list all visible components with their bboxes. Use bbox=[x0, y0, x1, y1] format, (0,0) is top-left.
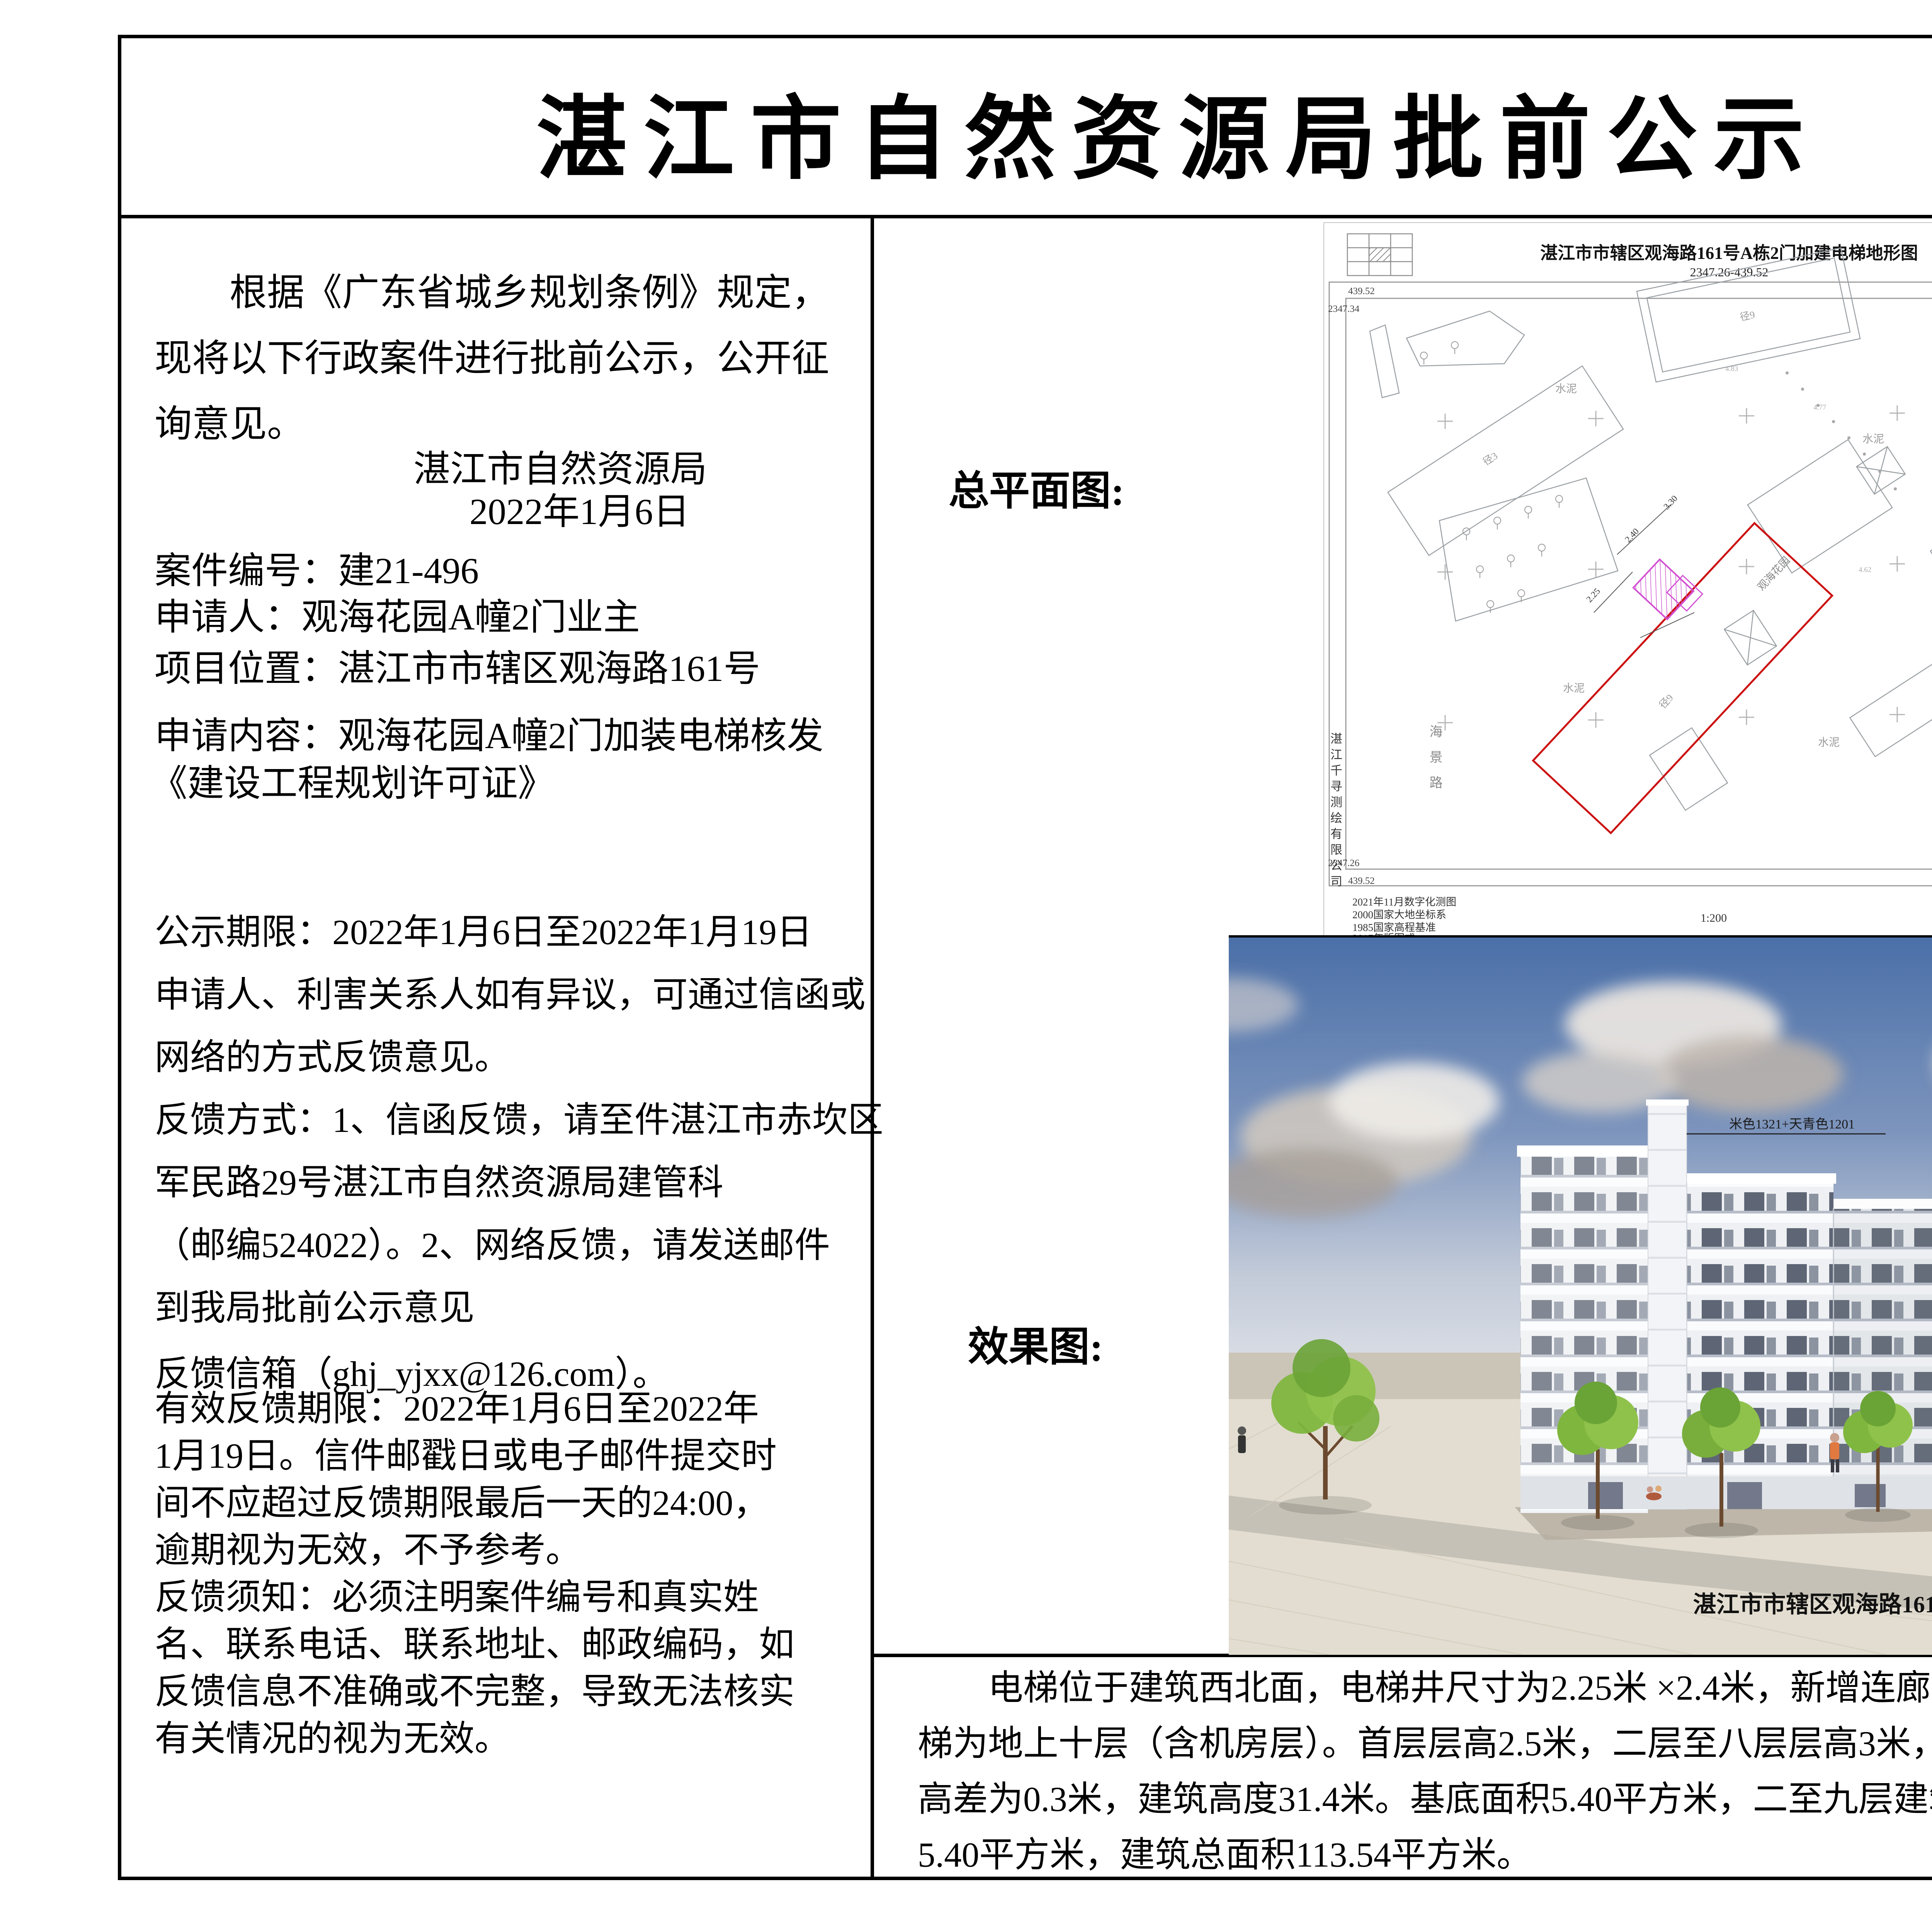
applicant: 申请人：观海花园A幢2门业主 bbox=[155, 597, 640, 638]
spot-elevation: 4.83 bbox=[1725, 365, 1738, 373]
notice-org: 湛江市自然资源局 bbox=[232, 449, 889, 490]
description-line: 高差为0.3米，建筑高度31.4米。基底面积5.40平方米，二至九层建筑面积均为… bbox=[918, 1780, 1932, 1819]
feedback-email: 反馈信箱（ghj_yjxx@126.com）。 bbox=[155, 1355, 668, 1394]
period-line: 公示期限：2022年1月6日至2022年1月19日 bbox=[155, 913, 812, 952]
description-line: 梯为地上十层（含机房层）。首层层高2.5米，二层至八层层高3米，九层4.5米，机… bbox=[918, 1724, 1932, 1763]
spot-elevation: 4.62 bbox=[1859, 566, 1871, 574]
page-title: 湛江市自然资源局批前公示 bbox=[444, 65, 1913, 197]
map-note: 1985国家高程基准 bbox=[1352, 922, 1436, 933]
notice-page: 湛江市自然资源局批前公示 根据《广东省城乡规划条例》规定， 现将以下行政案件进行… bbox=[0, 0, 1932, 1918]
survey-company-vertical-text: 湛江千寻测绘有限公司 bbox=[1327, 732, 1344, 891]
road-name-vertical-text: 海景路 bbox=[1425, 725, 1444, 801]
elevator-shaft bbox=[1648, 1103, 1687, 1509]
description-line: 5.40平方米，建筑总面积113.54平方米。 bbox=[918, 1836, 1532, 1874]
map-label-cement: 水泥 bbox=[1862, 433, 1884, 445]
siteplan-section-label: 总平面图: bbox=[949, 458, 1124, 517]
map-scale: 1:200 bbox=[1701, 912, 1727, 924]
map-note: 2000国家大地坐标系 bbox=[1352, 909, 1446, 921]
notice-intro-line: 现将以下行政案件进行批前公示，公开征 bbox=[155, 338, 829, 380]
validity-line: 名、联系电话、联系地址、邮政编码，如 bbox=[155, 1625, 794, 1664]
building-rendering: 米色1321+天青色1201 bbox=[1229, 935, 1932, 1655]
notice-date: 2022年1月6日 bbox=[270, 492, 889, 532]
project-location: 项目位置：湛江市市辖区观海路161号 bbox=[155, 648, 760, 689]
period-line: 网络的方式反馈意见。 bbox=[155, 1038, 510, 1077]
period-line: 军民路29号湛江市自然资源局建管科 bbox=[155, 1163, 723, 1202]
period-line: 申请人、利害关系人如有异议，可通过信函或 bbox=[155, 975, 866, 1014]
render-caption: 湛江市市辖区观海路161号观海花园A栋2门加建电梯 bbox=[1693, 1592, 1932, 1617]
validity-line: 反馈须知：必须注明案件编号和真实姓 bbox=[155, 1578, 759, 1617]
render-section-label: 效果图: bbox=[968, 1314, 1103, 1373]
color-annotation: 米色1321+天青色1201 bbox=[1729, 1117, 1855, 1132]
map-label-cement: 水泥 bbox=[1563, 682, 1585, 694]
notice-intro-line: 根据《广东省城乡规划条例》规定， bbox=[155, 272, 829, 314]
validity-line: 有关情况的视为无效。 bbox=[155, 1719, 510, 1758]
title-separator-line bbox=[118, 215, 1932, 218]
corner-coord: 439.52 bbox=[1348, 286, 1375, 296]
case-number: 案件编号：建21-496 bbox=[155, 551, 479, 591]
notice-intro-line: 询意见。 bbox=[155, 404, 304, 445]
period-line: （邮编524022）。2、网络反馈，请发送邮件 bbox=[155, 1226, 830, 1265]
period-line: 反馈方式：1、信函反馈，请至件湛江市赤坎区 bbox=[155, 1101, 883, 1140]
validity-line: 间不应超过反馈期限最后一天的24:00， bbox=[155, 1484, 769, 1523]
siteplan-title: 湛江市市辖区观海路161号A栋2门加建电梯地形图 bbox=[1540, 243, 1918, 263]
period-line: 到我局批前公示意见 bbox=[155, 1288, 474, 1327]
application-content: 申请内容：观海花园A幢2门加装电梯核发 bbox=[155, 716, 823, 756]
validity-line: 逾期视为无效，不予参考。 bbox=[155, 1531, 581, 1570]
validity-line: 反馈信息不准确或不完整，导致无法核实 bbox=[155, 1672, 794, 1711]
siteplan-drawing: 湛江市市辖区观海路161号A栋2门加建电梯地形图 2347.26-439.52 … bbox=[1323, 222, 1932, 944]
map-label-cement: 水泥 bbox=[1555, 383, 1577, 395]
description-line: 电梯位于建筑西北面，电梯井尺寸为2.25米 ×2.4米，新增连廊进深1.5米（局… bbox=[918, 1669, 1932, 1707]
validity-line: 有效反馈期限：2022年1月6日至2022年 bbox=[155, 1389, 759, 1428]
application-content: 《建设工程规划许可证》 bbox=[151, 763, 554, 804]
corner-coord: 2347.34 bbox=[1328, 304, 1360, 314]
spot-elevation: 4.77 bbox=[1813, 403, 1826, 412]
validity-line: 1月19日。信件邮戳日或电子邮件提交时 bbox=[155, 1436, 777, 1476]
map-note: 2021年11月数字化测图 bbox=[1352, 896, 1456, 908]
map-label-cement: 水泥 bbox=[1818, 736, 1840, 749]
corner-coord: 439.52 bbox=[1348, 876, 1375, 886]
